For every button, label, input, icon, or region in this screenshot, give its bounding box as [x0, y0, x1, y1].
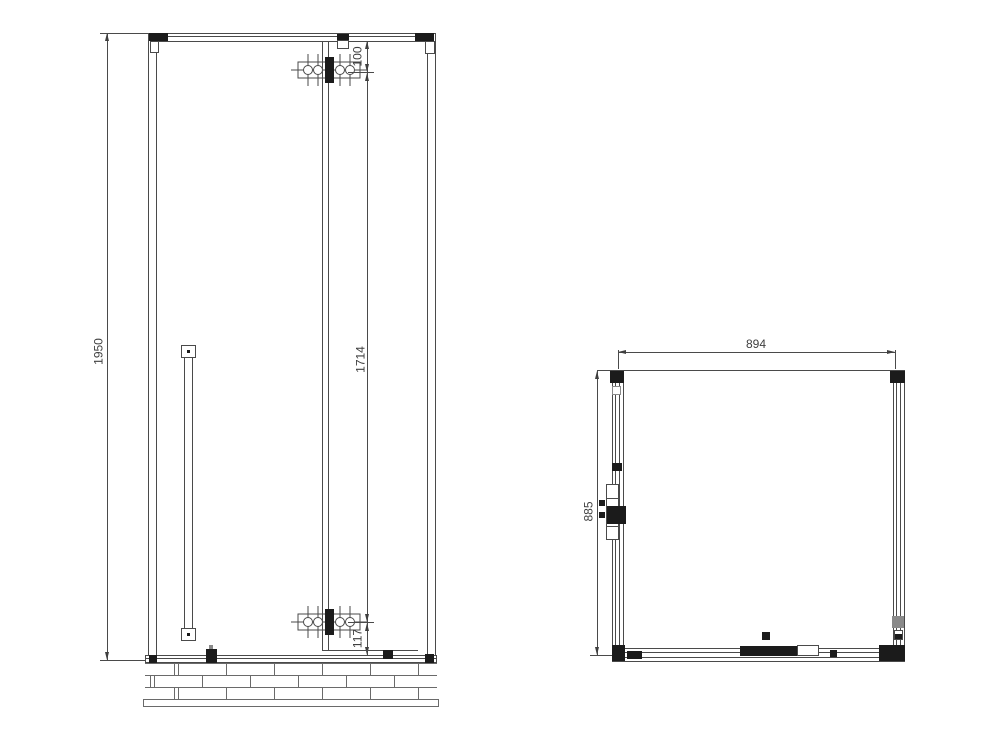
plan-handle-plate	[797, 645, 819, 656]
top-rail-inner-line	[148, 36, 436, 37]
dim-arrow	[365, 614, 369, 622]
plan-top-glass-line	[597, 370, 905, 371]
dim-arrow-up	[105, 33, 109, 41]
corner-tab-top-right	[425, 41, 435, 54]
glass-clamp-top-body	[337, 40, 349, 49]
dim-ext-line	[100, 660, 146, 661]
plan-hinge-rung	[606, 526, 619, 527]
plan-bracket-bottom-right	[879, 645, 905, 661]
tray-brick-row	[145, 687, 437, 699]
corner-bracket-top-left	[149, 33, 168, 41]
dim-arrow	[365, 73, 369, 81]
door-edge-divider	[322, 41, 329, 651]
dim-ext-line	[618, 350, 619, 369]
handle-bottom-cap-dot	[187, 633, 190, 636]
right-wall-profile	[427, 33, 436, 662]
dim-line-width	[618, 352, 895, 353]
handle-bar	[184, 357, 193, 629]
bottom-rail-inner-line	[145, 658, 437, 659]
dim-arrow-down	[595, 647, 599, 655]
dim-line-depth	[597, 371, 598, 655]
plan-bracket-top-left	[610, 371, 624, 383]
corner-tab-top-left	[150, 41, 159, 53]
plan-hinge-screw	[599, 512, 605, 518]
sill-bracket	[383, 650, 393, 659]
tray-brick-row	[145, 675, 437, 687]
dim-arrow	[365, 623, 369, 631]
dim-arrow	[365, 647, 369, 655]
dim-label-top-hinge-offset: 100	[352, 27, 365, 87]
dim-arrow-down	[105, 652, 109, 660]
plan-detail-top-left	[612, 386, 621, 395]
dim-arrow-up	[595, 371, 599, 379]
plan-hinge-tick	[612, 463, 622, 471]
handle-top-cap-dot	[187, 350, 190, 353]
plan-bracket-top-right	[890, 371, 905, 383]
corner-bracket-top-right	[415, 33, 434, 41]
dim-label-width: 894	[726, 338, 786, 351]
dim-ext-line	[895, 350, 896, 369]
plan-hinge-knuckle	[607, 506, 626, 524]
bottom-bracket-right	[425, 654, 434, 663]
plan-handle-tick	[762, 632, 770, 640]
plan-bottom-clip	[830, 650, 837, 657]
dim-arrow	[365, 64, 369, 72]
fixed-panel-sill	[328, 650, 418, 651]
dim-label-hinge-span: 1714	[355, 330, 368, 390]
bottom-rail	[145, 655, 437, 663]
tray-brick-row	[145, 663, 437, 675]
plan-handle-assembly	[740, 646, 798, 656]
bottom-bracket-left	[149, 655, 157, 663]
plan-hinge-rung	[606, 498, 619, 499]
left-wall-profile	[148, 33, 157, 662]
dim-ext-line	[590, 655, 614, 656]
dim-arrow-right	[887, 350, 895, 354]
plan-right-fitting	[892, 616, 904, 628]
top-rail	[148, 33, 436, 42]
plan-hinge-screw	[599, 500, 605, 506]
bottom-clamp	[206, 649, 217, 663]
dim-ext-line	[100, 33, 148, 34]
dim-arrow	[365, 41, 369, 49]
plan-bottom-rail-line	[612, 657, 905, 658]
plan-right-fitting-clip	[895, 634, 902, 639]
dim-line-overall-height	[107, 33, 108, 661]
cad-drawing-canvas: 1950	[0, 0, 999, 736]
dim-label-overall-height: 1950	[93, 322, 106, 382]
plan-bracket-bottom-left	[612, 645, 625, 661]
tray-base-band	[143, 699, 439, 707]
dim-label-depth: 885	[583, 482, 596, 542]
plan-bottom-left-clip	[627, 651, 642, 659]
dim-arrow-left	[618, 350, 626, 354]
